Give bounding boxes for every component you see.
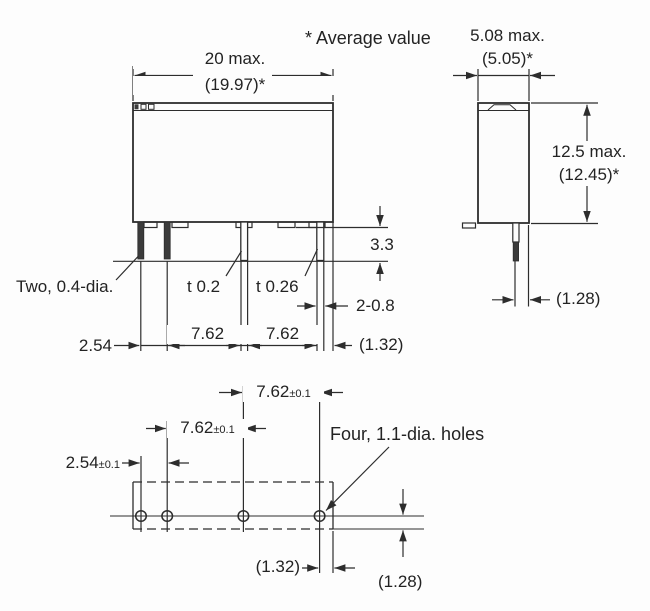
side-pin-offset-label: (1.28) [554, 290, 602, 309]
front-edge-offset-label: (1.32) [357, 336, 405, 355]
pcb-pitch2-label: 7.62±0.1 [167, 419, 248, 438]
pcb-pitch2-tolerance: ±0.1 [213, 424, 234, 436]
pcb-edge-x-label: (1.32) [230, 558, 302, 577]
side-width-avg-label: (5.05)* [453, 50, 562, 69]
front-pitch-left-label: 2.54 [20, 337, 114, 356]
front-pitch-right-label: 7.62 [243, 325, 322, 344]
pcb-pitch1-label: 7.62±0.1 [243, 383, 324, 402]
side-width-dim-label: 5.08 max. [453, 27, 562, 46]
front-pin-dia-label: Two, 0.4-dia. [14, 278, 115, 297]
pcb-pattern-drawing [110, 482, 424, 529]
pcb-pitch3-value: 2.54 [66, 453, 99, 472]
front-pitch-mid-label: 7.62 [167, 325, 248, 344]
front-pin-length-label: 3.3 [355, 236, 409, 255]
front-pin-thickness-left-label: t 0.2 [185, 278, 222, 297]
front-pin-thickness-right-label: t 0.26 [254, 278, 301, 297]
pcb-pattern-dimensions [113, 386, 403, 573]
side-height-dim-label: 12.5 max. [537, 143, 641, 162]
front-pin-width-label: 2-0.8 [354, 297, 397, 316]
pcb-holes-label: Four, 1.1-dia. holes [328, 425, 486, 445]
pcb-pitch2-value: 7.62 [180, 418, 213, 437]
pcb-pitch3-label: 2.54±0.1 [30, 454, 122, 473]
pcb-pitch3-tolerance: ±0.1 [99, 459, 120, 471]
front-width-avg-label: (19.97)* [133, 76, 337, 95]
side-height-avg-label: (12.45)* [537, 166, 641, 185]
pcb-edge-y-label: (1.28) [376, 573, 424, 592]
side-view-drawing [463, 103, 530, 261]
average-value-note: * Average value [303, 29, 433, 49]
front-view-drawing [133, 103, 333, 261]
pcb-pitch1-tolerance: ±0.1 [289, 388, 310, 400]
front-width-dim-label: 20 max. [133, 50, 337, 69]
pcb-pitch1-value: 7.62 [256, 382, 289, 401]
dimension-drawing: * Average value 20 max. (19.97)* 3.3 Two… [0, 0, 650, 611]
